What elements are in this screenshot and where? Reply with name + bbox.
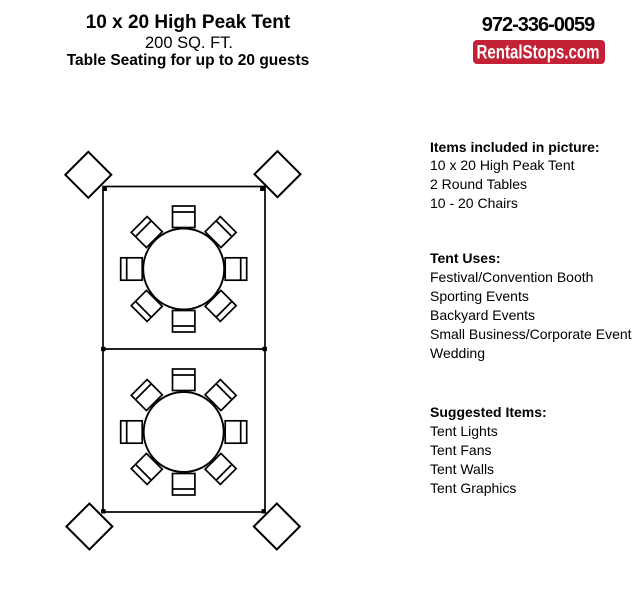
svg-text:RentalStops.com: RentalStops.com — [477, 42, 600, 64]
